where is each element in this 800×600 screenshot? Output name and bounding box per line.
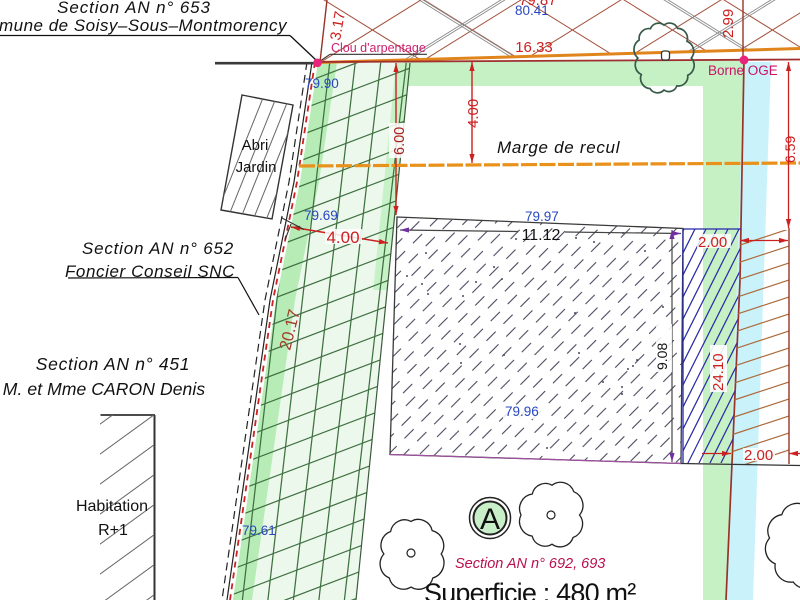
svg-text:11.12: 11.12 (522, 227, 561, 244)
svg-text:2.99: 2.99 (720, 9, 737, 38)
svg-text:Section AN n° 451: Section AN n° 451 (36, 354, 190, 374)
svg-text:Abri: Abri (242, 137, 269, 154)
svg-text:M. et Mme CARON Denis: M. et Mme CARON Denis (3, 379, 206, 399)
svg-text:4.00: 4.00 (326, 228, 359, 247)
svg-text:Marge de recul: Marge de recul (497, 138, 621, 157)
svg-text:A: A (480, 503, 500, 536)
svg-text:6.00: 6.00 (392, 127, 408, 155)
svg-text:Superficie : 480 m²: Superficie : 480 m² (424, 578, 636, 600)
svg-text:Section AN n° 652: Section AN n° 652 (82, 239, 234, 258)
svg-text:79.97: 79.97 (525, 209, 559, 224)
svg-text:mune de Soisy–Sous–Montmorency: mune de Soisy–Sous–Montmorency (0, 16, 288, 35)
svg-text:4.00: 4.00 (465, 99, 482, 128)
svg-text:79.96: 79.96 (505, 404, 539, 419)
svg-text:24.10: 24.10 (710, 353, 727, 391)
svg-text:Clou d'arpentage: Clou d'arpentage (331, 41, 426, 55)
svg-text:79.90: 79.90 (305, 76, 339, 91)
svg-text:R+1: R+1 (98, 522, 128, 539)
svg-text:2.00: 2.00 (744, 447, 773, 464)
svg-text:Habitation: Habitation (76, 498, 148, 515)
svg-text:Section AN n° 692, 693: Section AN n° 692, 693 (455, 556, 605, 572)
svg-text:6.59: 6.59 (782, 136, 798, 163)
svg-text:16.33: 16.33 (515, 39, 553, 56)
svg-text:9.08: 9.08 (654, 343, 670, 370)
svg-text:79.61: 79.61 (242, 523, 276, 538)
svg-text:Borne OGE: Borne OGE (708, 63, 778, 78)
svg-text:80.41: 80.41 (515, 3, 549, 18)
svg-text:2.00: 2.00 (698, 234, 727, 251)
svg-text:Jardin: Jardin (236, 159, 277, 176)
svg-text:Section AN n° 653: Section AN n° 653 (57, 0, 211, 17)
svg-text:79.69: 79.69 (304, 208, 338, 223)
